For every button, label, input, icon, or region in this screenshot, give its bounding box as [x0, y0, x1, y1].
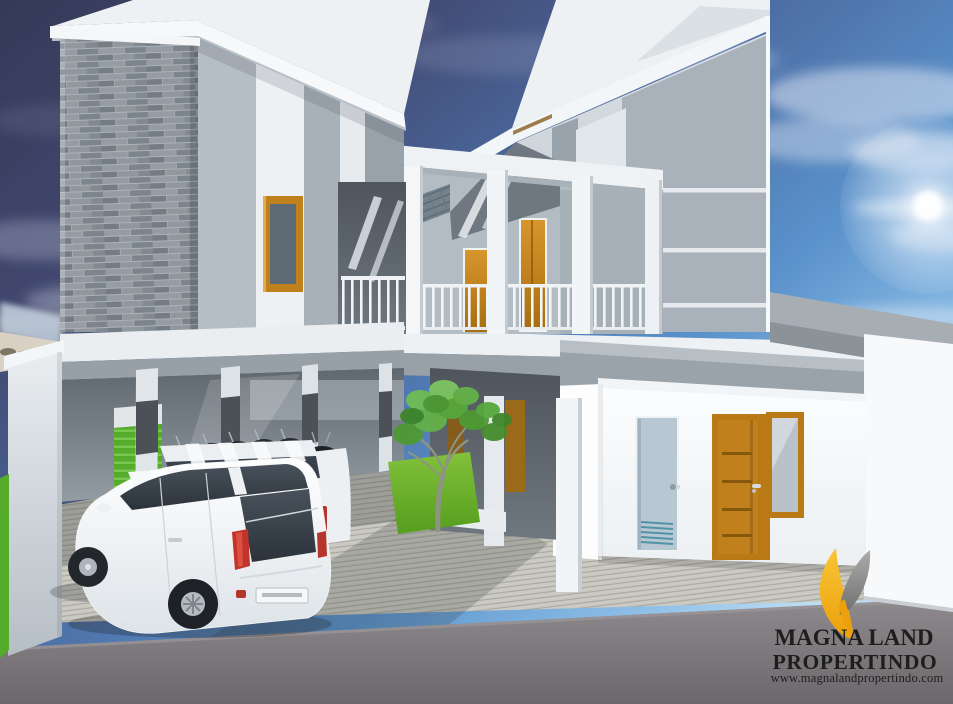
- walkway-railing: [423, 284, 645, 330]
- company-name-line1: MAGNA LAND: [774, 625, 933, 650]
- utility-door: [636, 417, 680, 551]
- wooden-entry-door: [712, 414, 770, 560]
- boundary-wall: [0, 340, 64, 658]
- rear-wheel: [168, 579, 218, 629]
- website-url: www.magnalandpropertindo.com: [771, 671, 944, 685]
- balcony-recess: [338, 182, 406, 334]
- grass-bed: [388, 452, 480, 534]
- architectural-rendering: MAGNA LAND PROPERTINDO www.magnalandprop…: [0, 0, 953, 704]
- front-window: [766, 412, 804, 518]
- side-wall: [864, 334, 953, 612]
- front-wheel: [68, 547, 108, 587]
- left-orange-window: [263, 196, 303, 292]
- rendered-image: MAGNA LAND PROPERTINDO www.magnalandprop…: [0, 0, 953, 704]
- stone-accent-wall: [50, 26, 200, 332]
